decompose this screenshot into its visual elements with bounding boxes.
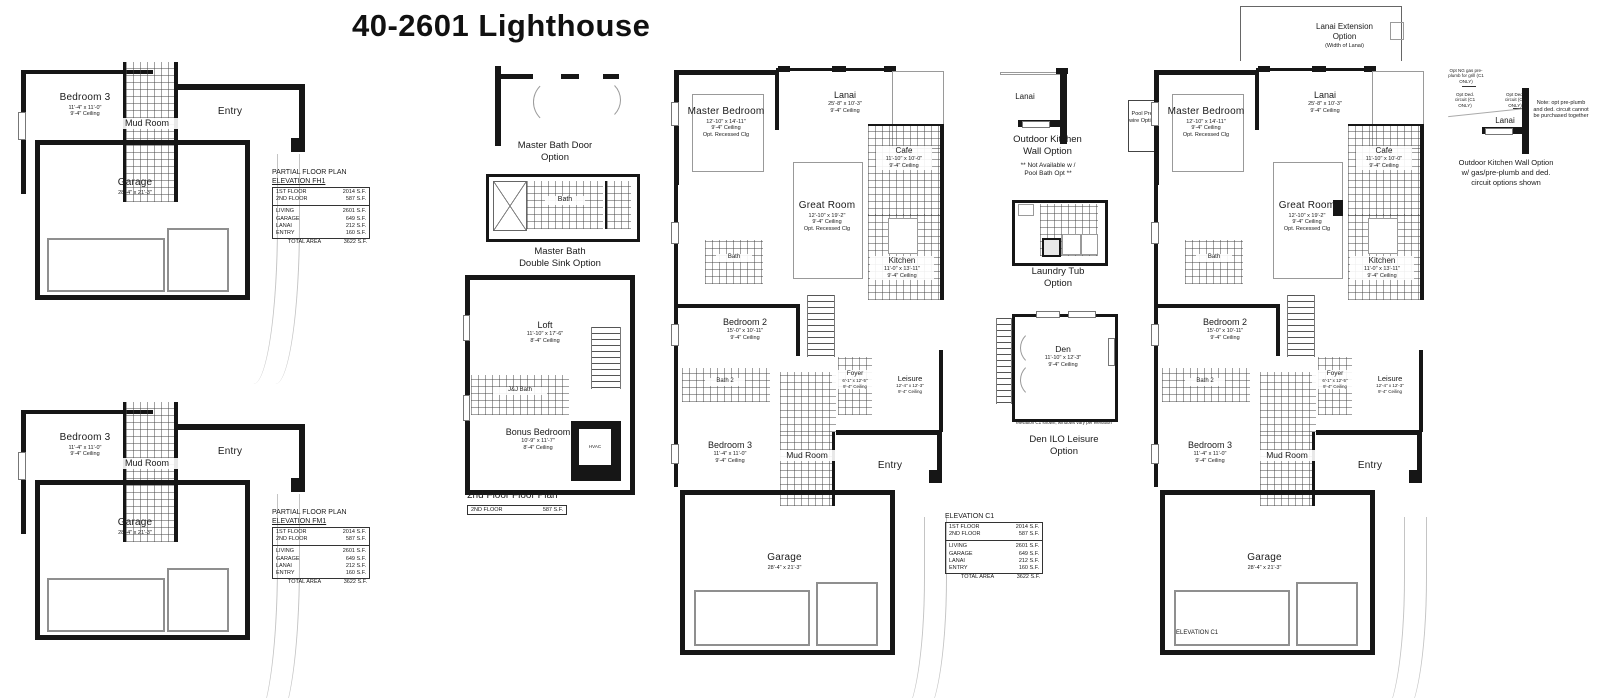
note-outdoor-kitchen: ** Not Available w / Pool Bath Opt ** (998, 162, 1098, 179)
room-dims: 11'-10" x 10'-0" (1356, 156, 1412, 163)
room-label-garage: Garage 28'-4" x 21'-3" (75, 517, 195, 536)
room-name: Bath (716, 254, 752, 262)
floor-plan-sheet: 40-2601 Lighthouse Bedroom 3 11'-4" x 11… (0, 0, 1600, 698)
wall-segment (175, 84, 305, 90)
room-ceiling: 9'-4" Ceiling (783, 219, 871, 226)
partial-plan-fm1: Bedroom 3 11'-4" x 11'-0" 9'-4" Ceiling … (15, 402, 315, 698)
room-dims: 28'-4" x 21'-3" (732, 565, 837, 572)
room-name: Garage (1212, 552, 1317, 565)
stairs (807, 295, 835, 357)
room-label-lanai: Lanai (1000, 92, 1050, 102)
room-name: Foyer (832, 370, 878, 378)
second-floor-plan: Loft 11'-10" x 17'-6" 8'-4" Ceiling J&J … (465, 275, 640, 500)
room-label-den: Den 11'-10" x 12'-3" 9'-4" Ceiling (1030, 344, 1096, 368)
table-elevation: ELEVATION FH1 (272, 177, 370, 186)
tiled-floor (1185, 240, 1243, 284)
room-dims: 11'-10" x 10'-0" (876, 156, 932, 163)
area-total: TOTAL AREA3622 S.F. (945, 574, 1043, 581)
room-name: Bedroom 3 (33, 432, 137, 445)
room-name: Garage (75, 517, 195, 530)
room-ceiling: 9'-4" Ceiling (870, 273, 934, 280)
room-name: Bedroom 3 (33, 92, 137, 105)
note-gas-preplumb: Opt NG gas pre-plumb for grill (C1 ONLY) (1448, 68, 1484, 84)
wall-segment (1522, 88, 1529, 154)
window (1068, 311, 1096, 318)
room-label-master-bedroom: Master Bedroom 12'-10" x 14'-11" 9'-4" C… (1156, 106, 1256, 139)
room-dims: 25'-8" x 10'-3" (800, 101, 890, 108)
window (463, 395, 470, 421)
room-name: Bath 2 (1185, 378, 1225, 386)
room-dims: 15'-0" x 10'-11" (690, 328, 800, 335)
stairs (591, 327, 621, 389)
window (1036, 311, 1060, 318)
garage-door (167, 228, 229, 292)
room-name: HVAC (579, 444, 611, 449)
window (1151, 222, 1159, 244)
caption-den-ilo-leisure: Den ILO Leisure Option (1014, 434, 1114, 459)
room-label-master-bedroom: Master Bedroom 12'-10" x 14'-11" 9'-4" C… (676, 106, 776, 139)
room-name: Cafe (1356, 146, 1412, 156)
room-dims: 12'-10" x 14'-11" (676, 119, 776, 126)
area-row: LIVING2601 S.F. (273, 208, 369, 215)
room-extra: Opt. Recessed Clg (676, 132, 776, 139)
area-row: LIVING2601 S.F. (273, 548, 369, 555)
wall-segment (1158, 304, 1280, 308)
caption-second-floor: 2nd Floor Floor Plan (467, 490, 558, 501)
column-block (1312, 66, 1326, 72)
stairs (1287, 295, 1315, 357)
room-name: Mud Room (1248, 450, 1326, 461)
room-name: Entry (1335, 460, 1405, 473)
wall-corner-block (291, 478, 305, 492)
room-name: Master Bedroom (1156, 106, 1256, 119)
table-divider (273, 545, 369, 546)
room-label-leisure: Leisure 12'-4" x 12'-3" 9'-4" Ceiling (882, 374, 938, 395)
area-row: LANAI212 S.F. (273, 223, 369, 230)
wall-segment (603, 74, 619, 79)
elevation-label: ELEVATION C1 (1176, 630, 1218, 636)
area-row: GARAGE649 S.F. (946, 551, 1042, 558)
room-label-bath: Bath (1196, 254, 1232, 262)
room-dims: 11'-0" x 13'-11" (1350, 266, 1414, 273)
area-row: ENTRY160 S.F. (273, 570, 369, 577)
room-label-great-room: Great Room 12'-10" x 19'-2" 9'-4" Ceilin… (783, 200, 871, 233)
room-name: Great Room (1263, 200, 1351, 213)
caption-master-bath-sink: Master Bath Double Sink Option (490, 246, 630, 271)
wall-corner-block (291, 138, 305, 152)
wall-segment (939, 350, 943, 432)
door-swing-arc (579, 79, 621, 121)
garage-door (167, 568, 229, 632)
room-name: Entry (195, 446, 265, 459)
wall-segment (1316, 430, 1422, 435)
garage-door (816, 582, 878, 646)
window (671, 324, 679, 346)
room-ceiling: 9'-4" Ceiling (1030, 362, 1096, 369)
room-label-mud-room: Mud Room (1248, 450, 1326, 461)
room-name: Lanai (1484, 116, 1526, 126)
area-row: LANAI212 S.F. (946, 558, 1042, 565)
area-row: ENTRY160 S.F. (946, 565, 1042, 572)
room-dims: 11'-10" x 17'-6" (490, 331, 600, 338)
room-label-lanai: Lanai (1484, 116, 1526, 126)
window (1108, 338, 1115, 366)
window (18, 452, 26, 480)
column-block (832, 66, 846, 72)
area-total: TOTAL AREA3622 S.F. (272, 239, 370, 246)
room-name: Entry (855, 460, 925, 473)
room-extra: Opt. Recessed Clg (1263, 226, 1351, 233)
room-name: Great Room (783, 200, 871, 213)
area-row: 1ST FLOOR2014 S.F. (946, 524, 1042, 531)
caption-outdoor-kitchen-gas: Outdoor Kitchen Wall Option w/ gas/pre-p… (1456, 158, 1556, 187)
room-label-bedroom3: Bedroom 3 11'-4" x 11'-0" 9'-4" Ceiling (33, 432, 137, 458)
room-ceiling: 9'-4" Ceiling (1156, 125, 1256, 132)
wall-segment (1154, 70, 1258, 75)
door-swing-arc (533, 79, 579, 125)
table-divider (946, 540, 1042, 541)
caption-outdoor-kitchen: Outdoor Kitchen Wall Option (995, 134, 1100, 159)
room-extra: Opt. Recessed Clg (783, 226, 871, 233)
tiled-floor (605, 181, 631, 229)
note-purchase: Note: opt pre-plumb and ded. circuit can… (1532, 100, 1590, 120)
area-row: 1ST FLOOR2014 S.F. (273, 529, 369, 536)
room-name: Bath (545, 196, 585, 205)
driveway-line (912, 517, 947, 698)
shower (493, 181, 527, 231)
room-label-bedroom2: Bedroom 2 15'-0" x 10'-11" 9'-4" Ceiling (690, 317, 800, 342)
room-dims: 28'-4" x 21'-3" (75, 530, 195, 537)
room-label-kitchen: Kitchen 11'-0" x 13'-11" 9'-4" Ceiling (870, 256, 934, 280)
room-ceiling: 9'-4" Ceiling (1263, 219, 1351, 226)
room-name: Mud Room (107, 458, 187, 469)
room-label-lanai: Lanai 25'-8" x 10'-3" 9'-4" Ceiling (1280, 90, 1370, 115)
partial-plan-fh1: Bedroom 3 11'-4" x 11'-0" 9'-4" Ceiling … (15, 62, 315, 392)
room-ceiling: 9'-4" Ceiling (876, 163, 932, 170)
room-ceiling: 9'-4" Ceiling (1280, 108, 1370, 115)
room-label-garage: Garage 28'-4" x 21'-3" (732, 552, 837, 571)
room-dims: 11'-0" x 13'-11" (870, 266, 934, 273)
garage-door (1296, 582, 1358, 646)
area-row: LANAI212 S.F. (273, 563, 369, 570)
area-row: LIVING2601 S.F. (946, 543, 1042, 550)
room-label-bath: Bath (716, 254, 752, 262)
wall-segment (561, 74, 579, 79)
room-label-bedroom2: Bedroom 2 15'-0" x 10'-11" 9'-4" Ceiling (1170, 317, 1280, 342)
counter (1022, 121, 1050, 128)
wall-corner-block (1409, 470, 1422, 483)
room-name: Cafe (876, 146, 932, 156)
area-row: 2ND FLOOR587 S.F. (273, 536, 369, 543)
room-label-mud-room: Mud Room (768, 450, 846, 461)
wall-segment (175, 424, 305, 430)
room-label-bath2: Bath 2 (1185, 378, 1225, 386)
room-dims: 11'-4" x 11'-0" (33, 445, 137, 452)
garage-door (694, 590, 810, 646)
room-label-foyer: Foyer 6'-1" x 12'-5" 9'-4" Ceiling (1312, 370, 1358, 389)
room-name: Bath 2 (705, 378, 745, 386)
wall-corner-block (929, 470, 942, 483)
room-ceiling: 9'-4" Ceiling (832, 384, 878, 390)
room-dims: 11'-4" x 11'-0" (33, 105, 137, 112)
room-label-jj-bath: J&J Bath (493, 387, 547, 395)
room-name: Kitchen (1350, 256, 1414, 266)
room-label-great-room: Great Room 12'-10" x 19'-2" 9'-4" Ceilin… (1263, 200, 1351, 233)
room-dims: 11'-10" x 12'-3" (1030, 355, 1096, 362)
room-ceiling: 9'-4" Ceiling (1356, 163, 1412, 170)
room-label-entry: Entry (195, 106, 265, 119)
shelf (1018, 204, 1034, 216)
area-row: 2ND FLOOR587 S.F. (946, 531, 1042, 538)
caption-master-bath-door: Master Bath Door Option (495, 140, 615, 165)
area-row: GARAGE649 S.F. (273, 216, 369, 223)
room-name: Lanai (1280, 90, 1370, 101)
room-label-cafe: Cafe 11'-10" x 10'-0" 9'-4" Ceiling (876, 146, 932, 170)
room-label-bedroom3: Bedroom 3 11'-4" x 11'-0" 9'-4" Ceiling (1165, 440, 1255, 465)
room-dims: 11'-4" x 11'-0" (1165, 451, 1255, 458)
wall-segment (836, 430, 942, 435)
wall-segment (501, 74, 533, 79)
room-name: Bedroom 3 (685, 440, 775, 451)
column-block (1258, 66, 1270, 72)
room-dims: 25'-8" x 10'-3" (1280, 101, 1370, 108)
note-den: elevation C1 shown, windows vary per ele… (1012, 420, 1116, 425)
room-label-entry: Entry (195, 446, 265, 459)
room-label-leisure: Leisure 12'-4" x 12'-3" 9'-4" Ceiling (1362, 374, 1418, 395)
tiled-floor (705, 240, 763, 284)
window (1151, 324, 1159, 346)
window (463, 315, 470, 341)
area-table-fm1: PARTIAL FLOOR PLAN ELEVATION FM1 1ST FLO… (272, 508, 370, 586)
room-name: Master Bedroom (676, 106, 776, 119)
room-ceiling: 9'-4" Ceiling (1350, 273, 1414, 280)
room-label-entry: Entry (1335, 460, 1405, 473)
room-dims: 15'-0" x 10'-11" (1170, 328, 1280, 335)
area-row: 2ND FLOOR587 S.F. (273, 196, 369, 203)
window (671, 222, 679, 244)
room-name: Bedroom 2 (1170, 317, 1280, 328)
room-label-garage: Garage 28'-4" x 21'-3" (1212, 552, 1317, 571)
area-row: GARAGE649 S.F. (273, 556, 369, 563)
area-total: TOTAL AREA3622 S.F. (272, 579, 370, 586)
room-ceiling: 9'-4" Ceiling (1312, 384, 1358, 390)
room-ceiling: 9'-4" Ceiling (685, 458, 775, 465)
hvac-closet: HVAC (579, 429, 611, 465)
note-ded-circuit: Opt Ded. circuit (C1 ONLY) (1450, 92, 1480, 108)
window (18, 112, 26, 140)
tiled-floor (527, 181, 603, 229)
room-name: J&J Bath (493, 387, 547, 395)
table-heading: PARTIAL FLOOR PLAN (272, 508, 370, 517)
room-name: Entry (195, 106, 265, 119)
stairs (996, 318, 1012, 404)
room-name: Foyer (1312, 370, 1358, 378)
room-label-loft: Loft 11'-10" x 17'-6" 8'-4" Ceiling (490, 320, 600, 345)
room-label-foyer: Foyer 6'-1" x 12'-5" 9'-4" Ceiling (832, 370, 878, 389)
room-label-garage: Garage 28'-4" x 21'-3" (75, 177, 195, 196)
tiled-floor (868, 124, 944, 216)
room-name: Mud Room (107, 118, 187, 129)
room-label-mud-room: Mud Room (107, 458, 187, 469)
room-ceiling: 9'-4" Ceiling (1362, 389, 1418, 395)
room-dims: 12'-10" x 14'-11" (1156, 119, 1256, 126)
table-heading: PARTIAL FLOOR PLAN (272, 168, 370, 177)
room-name: Garage (75, 177, 195, 190)
room-extra: Opt. Recessed Clg (1156, 132, 1256, 139)
room-label-bath: Bath (545, 196, 585, 205)
room-ceiling: 8'-4" Ceiling (490, 338, 600, 345)
second-floor-area-row: 2ND FLOOR587 S.F. (467, 505, 567, 515)
wall-segment (674, 70, 778, 75)
page-title: 40-2601 Lighthouse (352, 8, 650, 44)
room-label-mud-room: Mud Room (107, 118, 187, 129)
room-dims: 28'-4" x 21'-3" (1212, 565, 1317, 572)
caption-laundry-tub: Laundry Tub Option (1008, 266, 1108, 291)
room-dims: 28'-4" x 21'-3" (75, 190, 195, 197)
dryer (1081, 234, 1098, 255)
table-elevation: ELEVATION C1 (945, 512, 1043, 521)
window (1151, 444, 1159, 464)
room-name: Bath (1196, 254, 1232, 262)
kitchen-island (888, 218, 918, 254)
detail-mark (1390, 22, 1404, 40)
room-name: Bedroom 3 (1165, 440, 1255, 451)
caption-lanai-extension: Lanai Extension Option (Width of Lanai) (1292, 22, 1397, 50)
driveway-line (1392, 517, 1427, 698)
room-ceiling: 9'-4" Ceiling (1165, 458, 1255, 465)
room-dims: 12'-10" x 19'-2" (783, 213, 871, 220)
wall-segment (1419, 350, 1423, 432)
room-label-lanai: Lanai 25'-8" x 10'-3" 9'-4" Ceiling (800, 90, 890, 115)
room-label-kitchen: Kitchen 11'-0" x 13'-11" 9'-4" Ceiling (1350, 256, 1414, 280)
room-name: Leisure (1362, 374, 1418, 383)
window (671, 444, 679, 464)
area-table-c1: ELEVATION C1 1ST FLOOR2014 S.F. 2ND FLOO… (945, 512, 1043, 581)
room-label-bedroom3: Bedroom 3 11'-4" x 11'-0" 9'-4" Ceiling (685, 440, 775, 465)
wall-segment (678, 304, 800, 308)
area-row: ENTRY160 S.F. (273, 230, 369, 237)
room-ceiling: 9'-4" Ceiling (800, 108, 890, 115)
room-label-bedroom3: Bedroom 3 11'-4" x 11'-0" 9'-4" Ceiling (33, 92, 137, 118)
room-name: Lanai (1000, 92, 1050, 102)
table-divider (273, 205, 369, 206)
main-plan-center: Master Bedroom 12'-10" x 14'-11" 9'-4" C… (660, 62, 950, 698)
room-name: Den (1030, 344, 1096, 355)
tiled-floor (780, 372, 836, 432)
main-plan-right: Master Bedroom 12'-10" x 14'-11" 9'-4" C… (1140, 62, 1430, 698)
room-name: Leisure (882, 374, 938, 383)
room-name: Loft (490, 320, 600, 331)
room-dims: 11'-4" x 11'-0" (685, 451, 775, 458)
column-block (778, 66, 790, 72)
garage-door (1174, 590, 1290, 646)
kitchen-island (1368, 218, 1398, 254)
room-label-entry: Entry (855, 460, 925, 473)
room-name: Kitchen (870, 256, 934, 266)
room-ceiling: 9'-4" Ceiling (882, 389, 938, 395)
room-name: Mud Room (768, 450, 846, 461)
room-ceiling: 9'-4" Ceiling (1170, 335, 1280, 342)
room-ceiling: 9'-4" Ceiling (690, 335, 800, 342)
room-label-cafe: Cafe 11'-10" x 10'-0" 9'-4" Ceiling (1356, 146, 1412, 170)
room-ceiling: 9'-4" Ceiling (676, 125, 776, 132)
area-table-fh1: PARTIAL FLOOR PLAN ELEVATION FH1 1ST FLO… (272, 168, 370, 246)
laundry-tub (1042, 238, 1061, 257)
room-name: Bedroom 2 (690, 317, 800, 328)
room-dims: 12'-10" x 19'-2" (1263, 213, 1351, 220)
room-label-bath2: Bath 2 (705, 378, 745, 386)
garage-door (47, 238, 165, 292)
area-row: 1ST FLOOR2014 S.F. (273, 189, 369, 196)
tiled-floor (471, 375, 569, 415)
garage-door (47, 578, 165, 632)
tiled-floor (1348, 124, 1424, 216)
counter (1485, 128, 1513, 135)
tiled-floor (1260, 372, 1316, 432)
table-elevation: ELEVATION FM1 (272, 517, 370, 526)
leader-line (1462, 86, 1476, 87)
room-name: Lanai (800, 90, 890, 101)
washer (1062, 234, 1081, 255)
room-name: Garage (732, 552, 837, 565)
